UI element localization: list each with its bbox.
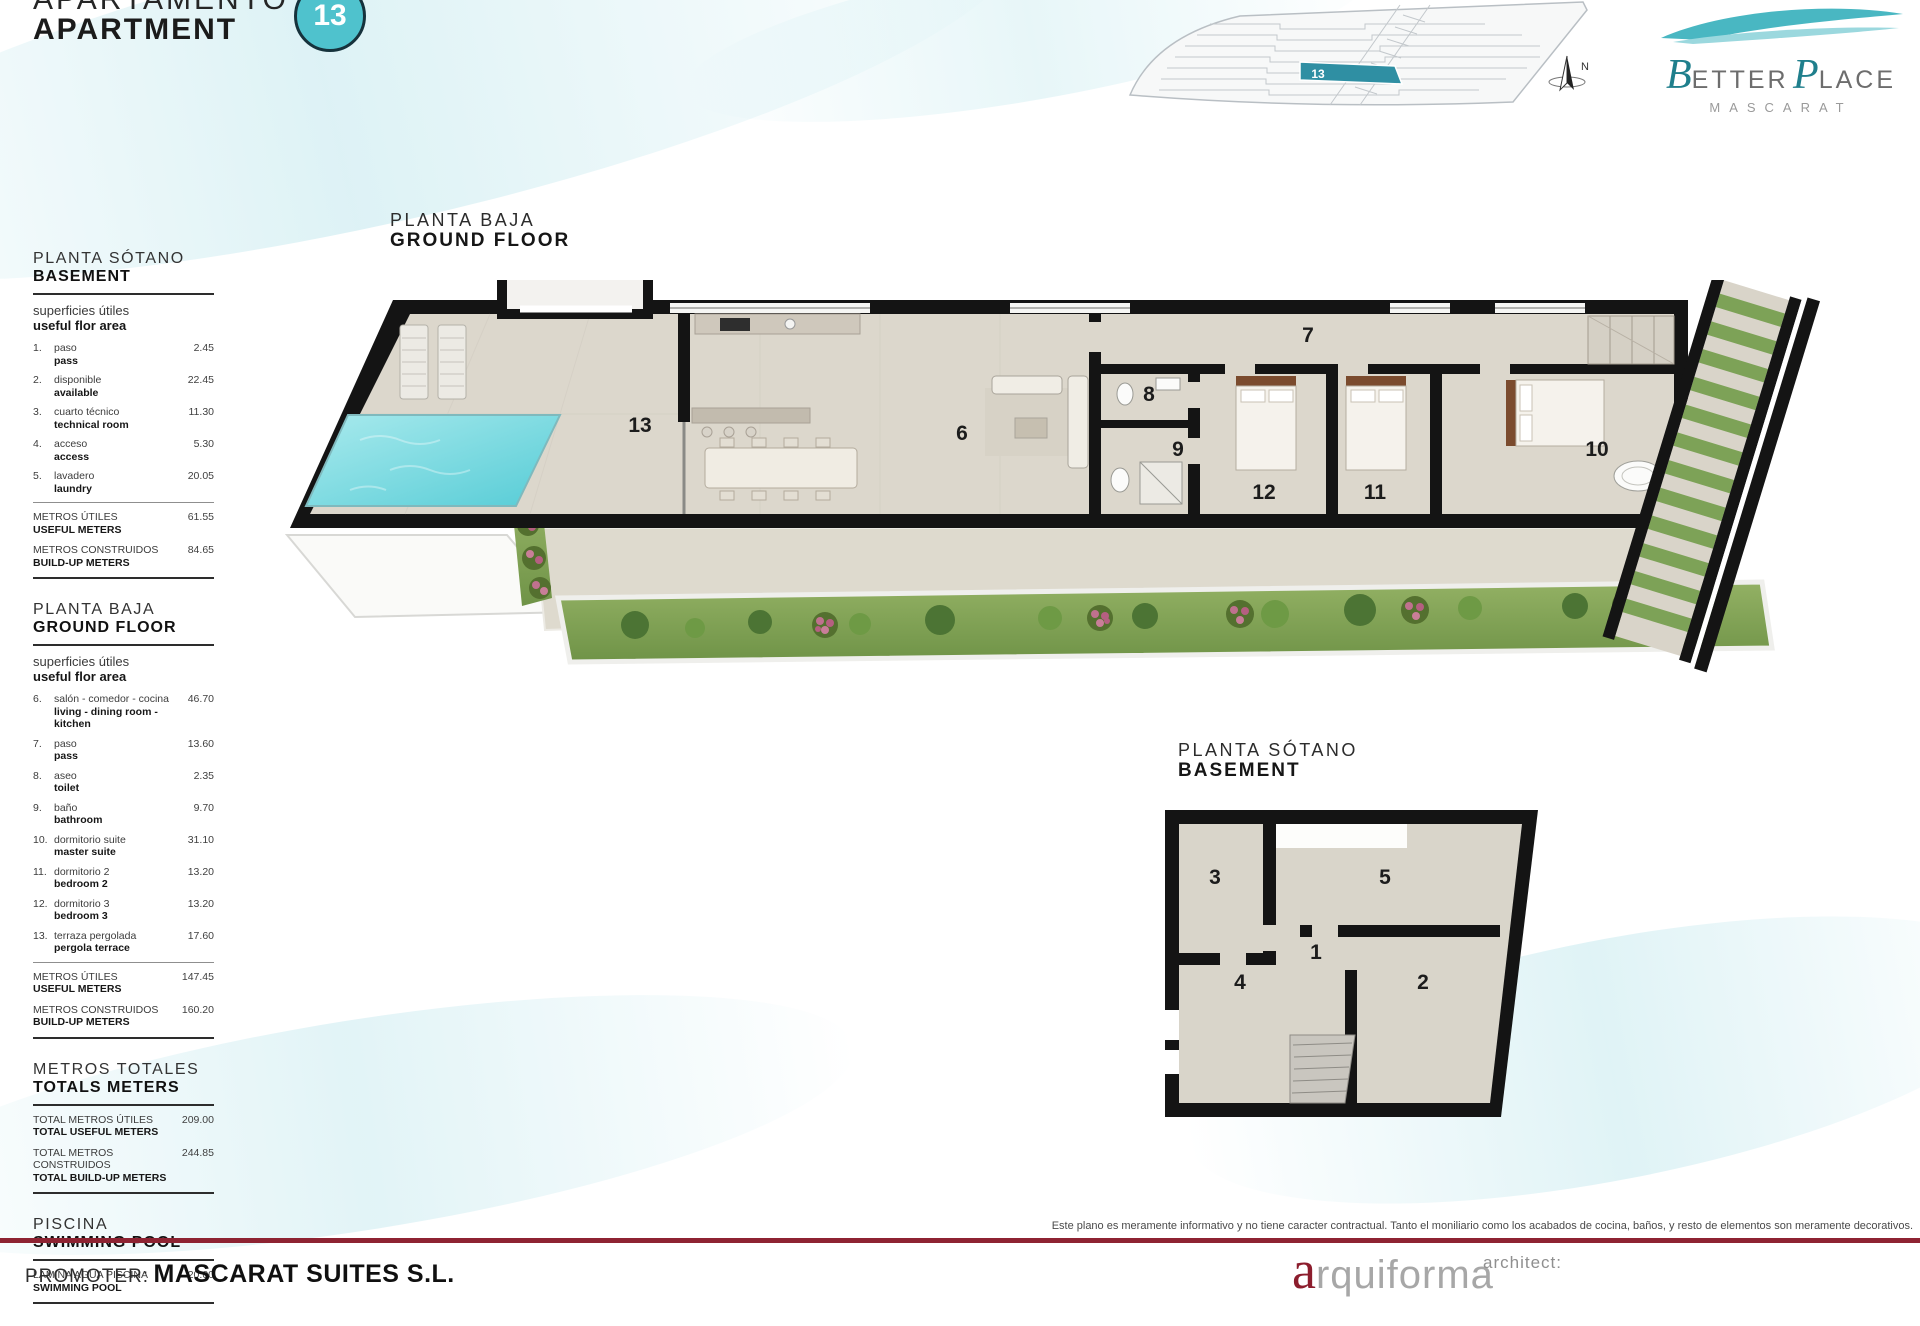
door-gap bbox=[1089, 322, 1101, 352]
section-title-es: PLANTA SÓTANO bbox=[33, 250, 214, 268]
room-label-laundry: 5 bbox=[1379, 866, 1391, 889]
divider-wall bbox=[678, 314, 690, 422]
divider bbox=[33, 644, 214, 646]
lightwell-notch bbox=[1275, 824, 1407, 848]
total-row: METROS ÚTILESUSEFUL METERS147.45 bbox=[33, 971, 214, 996]
door-gap bbox=[1480, 364, 1510, 374]
area-row: 13.terraza pergoladapergola terrace17.60 bbox=[33, 930, 214, 955]
sheet-title-en: APARTMENT bbox=[33, 13, 237, 47]
basement-heading-en: BASEMENT bbox=[1178, 760, 1358, 781]
room-label-terrace: 13 bbox=[628, 414, 651, 437]
area-row: 11.dormitorio 2bedroom 213.20 bbox=[33, 866, 214, 891]
divider bbox=[33, 962, 214, 963]
door-gap bbox=[1338, 364, 1368, 374]
room-label-available: 2 bbox=[1417, 971, 1429, 994]
divider bbox=[33, 1192, 214, 1194]
sofa-group bbox=[985, 376, 1088, 468]
area-row: 5.lavaderolaundry20.05 bbox=[33, 470, 214, 495]
studio-initial: a bbox=[1292, 1240, 1316, 1300]
promoter-line: PROMOTER: MASCARAT SUITES S.L. bbox=[25, 1260, 455, 1289]
unit-number: 13 bbox=[313, 0, 346, 33]
basement-stairs bbox=[1290, 1035, 1355, 1103]
section-subtitle-es: superficies útiles bbox=[33, 654, 214, 669]
brand-swoosh-icon bbox=[1653, 2, 1909, 44]
area-row: 10.dormitorio suitemaster suite31.10 bbox=[33, 834, 214, 859]
divider bbox=[33, 577, 214, 579]
area-row: 8.aseotoilet2.35 bbox=[33, 770, 214, 795]
total-row: TOTAL METROS CONSTRUIDOSTOTAL BUILD-UP M… bbox=[33, 1147, 214, 1185]
total-row: METROS CONSTRUIDOSBUILD-UP METERS160.20 bbox=[33, 1004, 214, 1029]
bed-bedroom3 bbox=[1236, 376, 1296, 470]
section-total-meters: METROS TOTALES TOTALS METERS TOTAL METRO… bbox=[33, 1061, 214, 1195]
ground-floor-heading-en: GROUND FLOOR bbox=[390, 230, 570, 251]
basement-heading-es: PLANTA SÓTANO bbox=[1178, 740, 1358, 760]
promoter-name: MASCARAT SUITES S.L. bbox=[154, 1260, 455, 1288]
area-row: 12.dormitorio 3bedroom 313.20 bbox=[33, 898, 214, 923]
section-title-en: SWIMMING POOL bbox=[33, 1234, 214, 1252]
area-row: 9.bañobathroom9.70 bbox=[33, 802, 214, 827]
area-row: 3.cuarto técnicotechnical room11.30 bbox=[33, 406, 214, 431]
ground-floor-heading: PLANTA BAJA GROUND FLOOR bbox=[390, 210, 570, 251]
site-unit-label: 13 bbox=[1311, 67, 1325, 81]
bedroom-wall bbox=[1430, 364, 1442, 514]
brand-b-rest: ETTER bbox=[1692, 66, 1789, 94]
site-key-plan: 13 N bbox=[1115, 0, 1615, 110]
basement-heading: PLANTA SÓTANO BASEMENT bbox=[1178, 740, 1358, 781]
total-row: METROS ÚTILESUSEFUL METERS61.55 bbox=[33, 511, 214, 536]
section-title-es: METROS TOTALES bbox=[33, 1061, 214, 1079]
room-label-technical: 3 bbox=[1209, 866, 1221, 889]
promoter-label: PROMOTER: bbox=[25, 1266, 149, 1287]
swimming-pool bbox=[306, 415, 560, 506]
garden-strip bbox=[558, 582, 1772, 662]
room-label-toilet: 8 bbox=[1143, 383, 1155, 406]
studio-logo: arquiforma bbox=[1292, 1250, 1494, 1298]
section-basement-areas: PLANTA SÓTANO BASEMENT superficies útile… bbox=[33, 250, 214, 579]
site-hull-outline bbox=[1130, 2, 1587, 105]
compass-n-label: N bbox=[1581, 61, 1589, 73]
section-title-en: TOTALS METERS bbox=[33, 1079, 214, 1097]
unit-number-badge: 13 bbox=[294, 0, 366, 52]
architect-label: architect: bbox=[1483, 1253, 1562, 1273]
section-subtitle-en: useful flor area bbox=[33, 669, 214, 684]
ground-floor-heading-es: PLANTA BAJA bbox=[390, 210, 570, 230]
room-label-access: 4 bbox=[1234, 971, 1246, 994]
basement-plan: 3 5 1 4 2 bbox=[1160, 805, 1560, 1135]
divider bbox=[33, 502, 214, 503]
compass-icon: N bbox=[1549, 56, 1589, 90]
area-row: 2.disponibleavailable22.45 bbox=[33, 374, 214, 399]
brand-b-initial: B bbox=[1666, 52, 1692, 98]
area-row: 6.salón - comedor - cocinaliving - dinin… bbox=[33, 693, 214, 731]
divider bbox=[33, 293, 214, 295]
room-label-bed2: 11 bbox=[1364, 481, 1387, 504]
section-title-en: GROUND FLOOR bbox=[33, 619, 214, 637]
disclaimer-text: Este plano es meramente informativo y no… bbox=[1052, 1220, 1913, 1232]
brand-subtitle: MASCARAT bbox=[1648, 100, 1914, 115]
room-label-living: 6 bbox=[956, 422, 968, 445]
bed-bedroom2 bbox=[1346, 376, 1406, 470]
divider bbox=[33, 1037, 214, 1039]
window-slots bbox=[670, 303, 1585, 313]
section-title-es: PLANTA BAJA bbox=[33, 601, 214, 619]
brand-p-rest: LACE bbox=[1819, 66, 1896, 94]
brand-p-initial: P bbox=[1793, 52, 1819, 98]
area-row: 1.pasopass2.45 bbox=[33, 342, 214, 367]
footer-divider-line bbox=[0, 1238, 1920, 1243]
ground-floor-plan: 13 6 7 8 9 12 11 10 bbox=[240, 280, 1900, 710]
room-label-bath: 9 bbox=[1172, 438, 1184, 461]
studio-name-rest: rquiforma bbox=[1316, 1253, 1494, 1297]
section-subtitle-en: useful flor area bbox=[33, 318, 214, 333]
area-tables-sidebar: PLANTA SÓTANO BASEMENT superficies útile… bbox=[33, 250, 214, 1326]
brand-logo: BETTER PLACE MASCARAT bbox=[1648, 2, 1914, 115]
section-ground-floor-areas: PLANTA BAJA GROUND FLOOR superficies úti… bbox=[33, 601, 214, 1039]
door-gap bbox=[1225, 364, 1255, 374]
divider bbox=[33, 1104, 214, 1106]
section-subtitle-es: superficies útiles bbox=[33, 303, 214, 318]
room-label-pass: 1 bbox=[1310, 941, 1322, 964]
area-row: 7.pasopass13.60 bbox=[33, 738, 214, 763]
divider bbox=[33, 1302, 214, 1304]
section-title-es: PISCINA bbox=[33, 1216, 214, 1234]
room-label-hall: 7 bbox=[1302, 324, 1314, 347]
area-row: 4.accesoaccess5.30 bbox=[33, 438, 214, 463]
room-label-bed3: 12 bbox=[1252, 481, 1275, 504]
bedroom-wall bbox=[1326, 364, 1338, 514]
total-row: METROS CONSTRUIDOSBUILD-UP METERS84.65 bbox=[33, 544, 214, 569]
total-row: TOTAL METROS ÚTILESTOTAL USEFUL METERS20… bbox=[33, 1114, 214, 1139]
section-title-en: BASEMENT bbox=[33, 268, 214, 286]
room-label-master: 10 bbox=[1585, 438, 1608, 461]
